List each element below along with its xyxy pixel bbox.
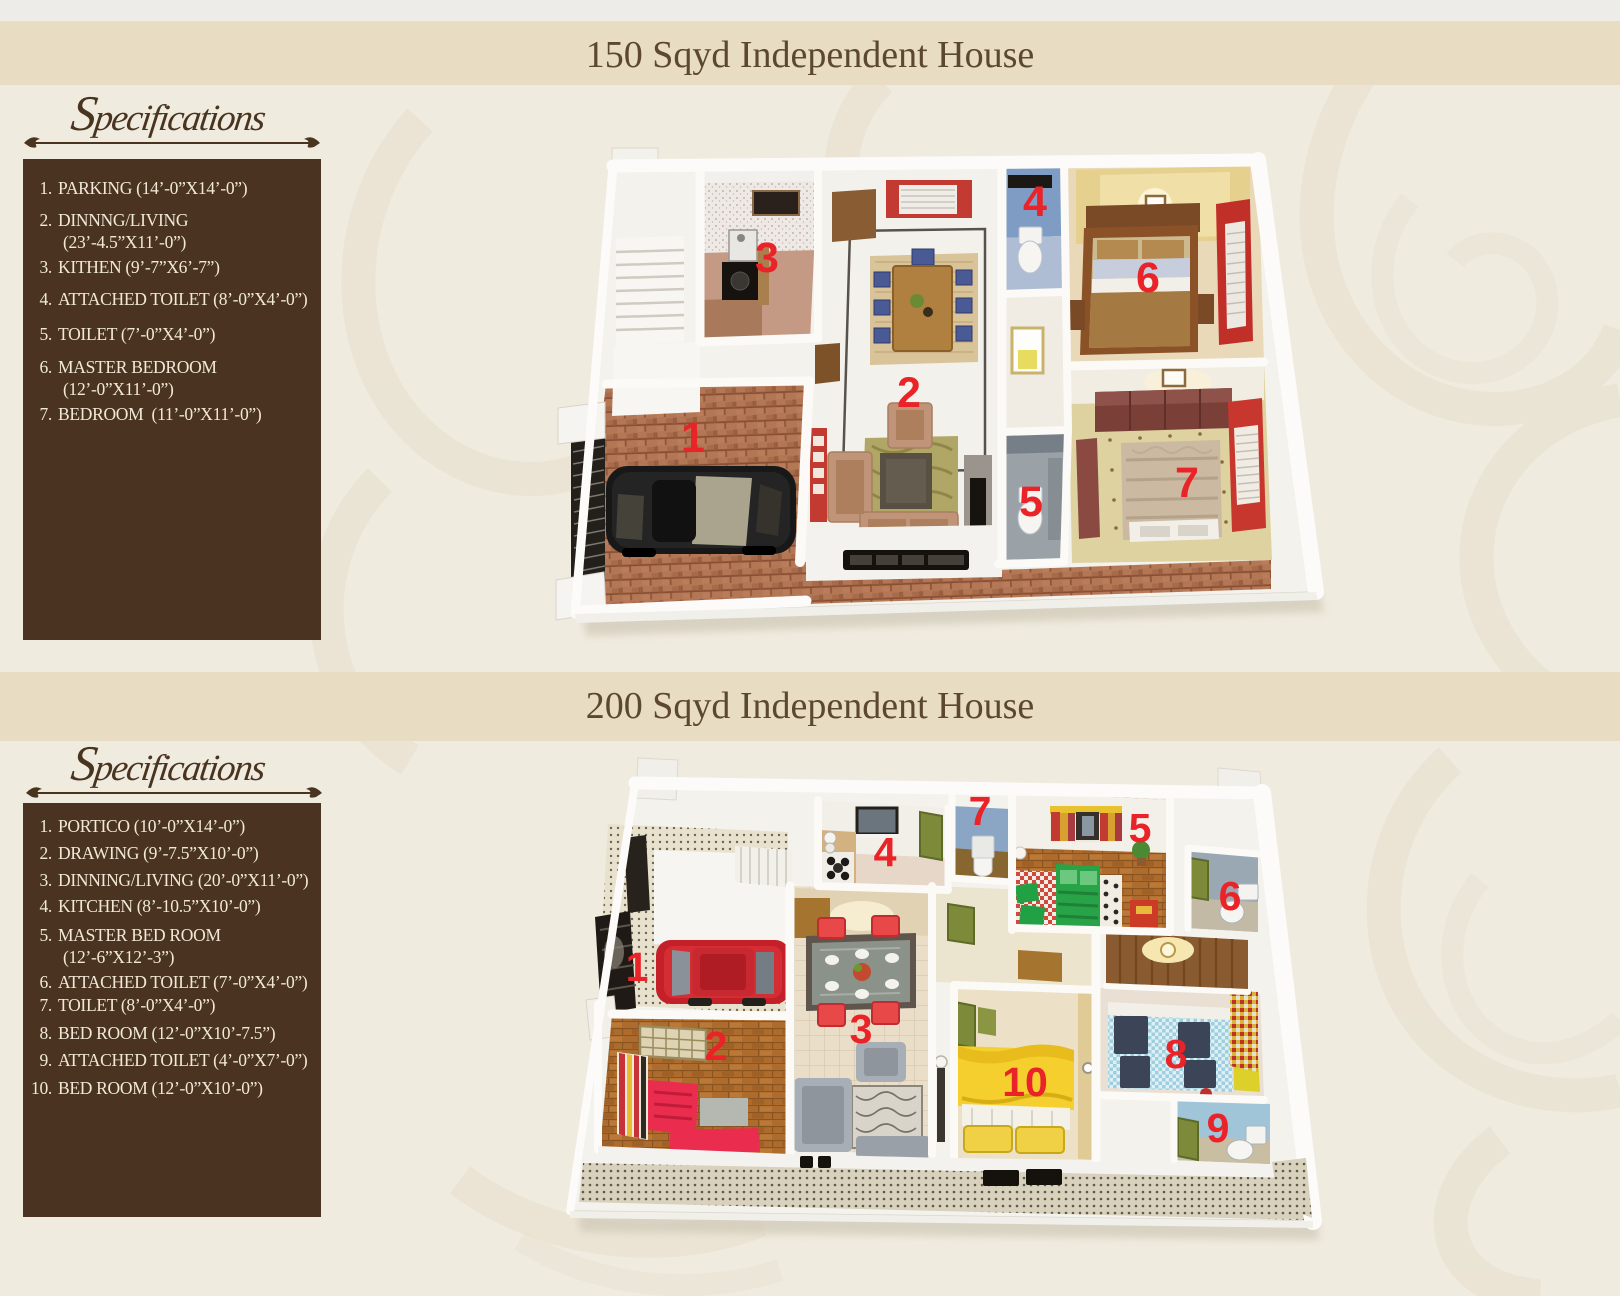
svg-text:2: 2 — [705, 1023, 728, 1069]
svg-text:8: 8 — [1165, 1031, 1188, 1077]
svg-text:4: 4 — [874, 829, 897, 875]
svg-text:3: 3 — [850, 1006, 873, 1052]
svg-text:1: 1 — [626, 944, 649, 990]
svg-text:6: 6 — [1219, 873, 1242, 919]
svg-text:10: 10 — [1002, 1059, 1048, 1105]
svg-text:9: 9 — [1207, 1105, 1230, 1151]
svg-text:5: 5 — [1129, 805, 1152, 851]
svg-text:7: 7 — [969, 788, 992, 834]
